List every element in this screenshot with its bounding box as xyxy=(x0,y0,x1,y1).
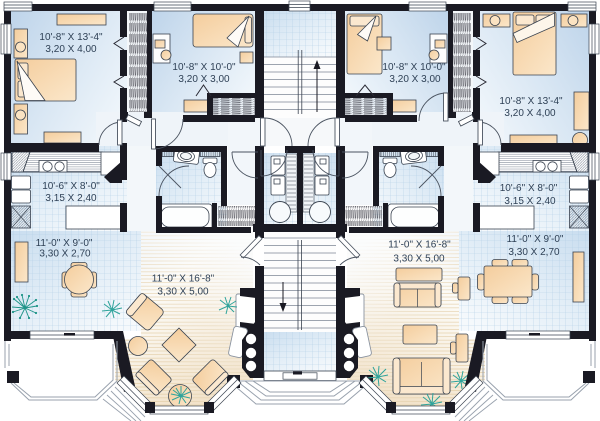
svg-text:3,20 X 3,00: 3,20 X 3,00 xyxy=(178,74,230,85)
svg-text:10'-8" X 10'-0": 10'-8" X 10'-0" xyxy=(382,62,446,73)
svg-text:3,30 X 2,70: 3,30 X 2,70 xyxy=(508,247,560,258)
svg-text:3,15 X 2,40: 3,15 X 2,40 xyxy=(45,193,97,204)
svg-text:3,30 X 5,00: 3,30 X 5,00 xyxy=(393,254,445,265)
svg-text:10'-8" X 10'-0": 10'-8" X 10'-0" xyxy=(172,62,236,73)
svg-text:3,30 X 5,00: 3,30 X 5,00 xyxy=(157,287,209,298)
svg-text:11'-0" X 9'-0": 11'-0" X 9'-0" xyxy=(507,234,564,245)
svg-text:3,20 X 4,00: 3,20 X 4,00 xyxy=(45,44,97,55)
svg-text:11'-0" X 16'-8": 11'-0" X 16'-8" xyxy=(152,274,215,285)
svg-text:11'-0" X 16'-8": 11'-0" X 16'-8" xyxy=(388,240,451,251)
svg-text:11'-0" X 9'-0": 11'-0" X 9'-0" xyxy=(36,238,93,249)
svg-text:10'-6" X 8'-0": 10'-6" X 8'-0" xyxy=(500,183,558,194)
svg-text:3,20 X 3,00: 3,20 X 3,00 xyxy=(389,74,441,85)
svg-text:10'-8" X 13'-4": 10'-8" X 13'-4" xyxy=(499,96,563,107)
svg-text:3,20 X 4,00: 3,20 X 4,00 xyxy=(504,108,556,119)
svg-text:3,30 X 2,70: 3,30 X 2,70 xyxy=(39,249,91,260)
svg-text:10'-6" X 8'-0": 10'-6" X 8'-0" xyxy=(42,181,100,192)
svg-text:10'-8" X 13'-4": 10'-8" X 13'-4" xyxy=(39,32,103,43)
svg-text:3,15 X 2,40: 3,15 X 2,40 xyxy=(504,196,556,207)
